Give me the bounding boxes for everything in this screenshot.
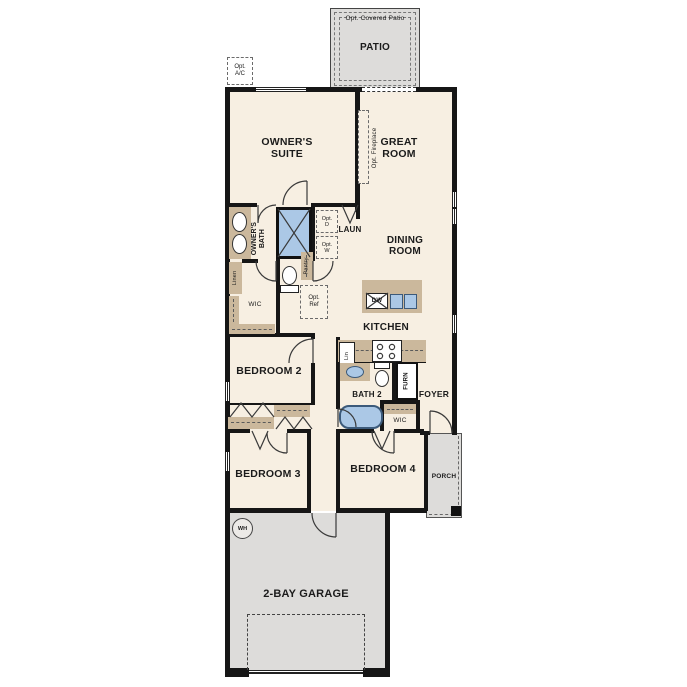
bedroom2-label: BEDROOM 2 [226, 364, 312, 378]
kitchen-label: KITCHEN [356, 321, 416, 334]
laun-label: LAUN [336, 224, 364, 236]
dining-room-label: DINING ROOM [380, 232, 430, 260]
pantry-label-wrap: Pantry [301, 252, 313, 280]
garage-label: 2-BAY GARAGE [246, 576, 366, 612]
wic-hall-label: WIC [384, 416, 416, 426]
opt-fireplace-label-wrap: Opt. Fireplace [368, 108, 382, 188]
wic-owner-label: WIC [240, 300, 270, 310]
linen-label-wrap: Linen [229, 262, 242, 294]
bedroom4-label: BEDROOM 4 [340, 462, 426, 476]
foyer-label: FOYER [416, 389, 452, 401]
porch-label: PORCH [427, 472, 461, 482]
bedroom3-label: BEDROOM 3 [224, 467, 312, 481]
owners-bath-label: OWNER'S BATH [251, 222, 266, 255]
dw-label: DW [366, 296, 388, 306]
furn-label-wrap: FURN [396, 362, 418, 400]
owners-bath-label-wrap: OWNER'S BATH [246, 210, 272, 268]
lin-label-wrap: Lin [339, 342, 355, 370]
bath2-label: BATH 2 [352, 384, 382, 406]
owners-suite-label: OWNER'S SUITE [258, 134, 316, 162]
linen-label: Linen [233, 271, 239, 285]
lin-label: Lin [344, 352, 350, 360]
floor-plan: Opt. Covered Patio PATIO Opt. A/C [0, 0, 687, 687]
great-room-label: GREAT ROOM [376, 134, 422, 162]
pantry-label: Pantry [304, 257, 310, 274]
opt-fireplace-label: Opt. Fireplace [372, 128, 378, 168]
furn-label: FURN [404, 372, 410, 389]
